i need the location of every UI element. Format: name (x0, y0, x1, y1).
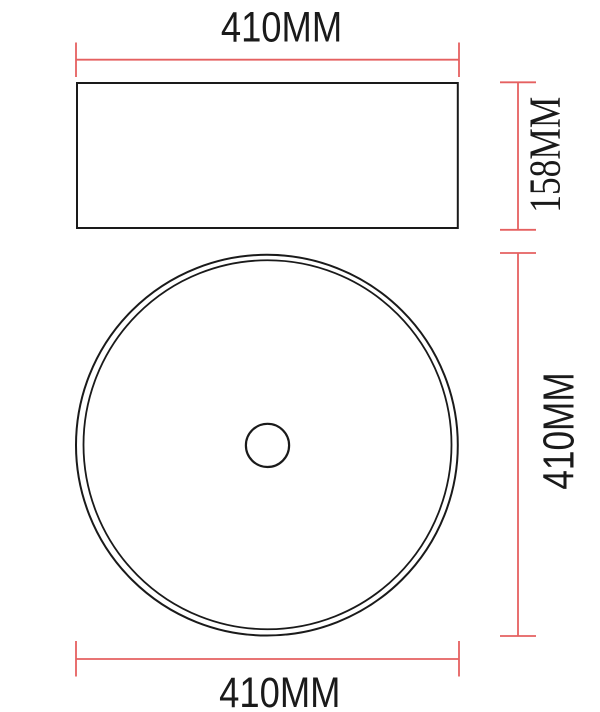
svg-text:410MM: 410MM (535, 372, 584, 489)
svg-text:158MM: 158MM (520, 97, 570, 213)
svg-text:410MM: 410MM (221, 4, 342, 51)
svg-text:410MM: 410MM (219, 669, 340, 712)
